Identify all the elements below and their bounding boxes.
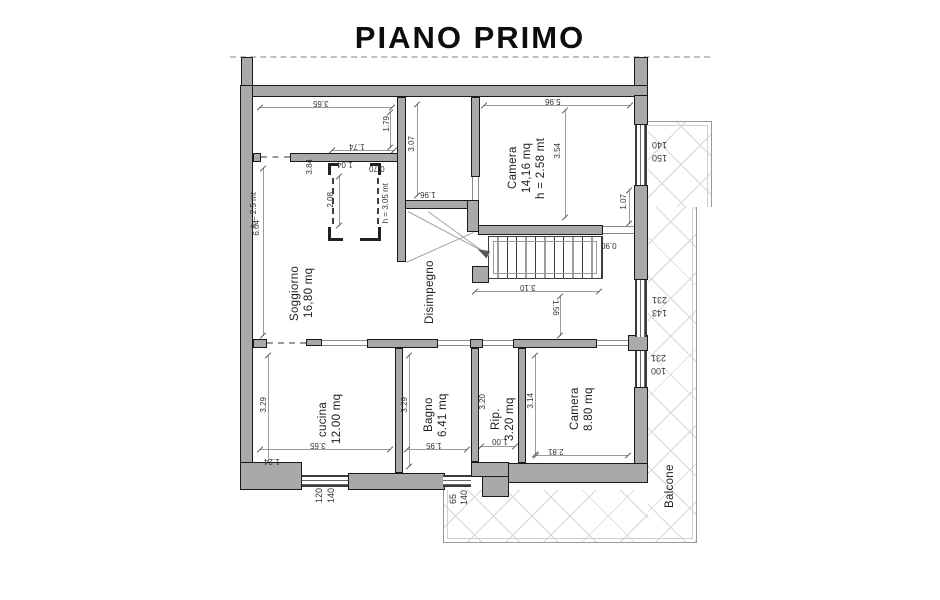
room-name: Soggiorno (288, 248, 302, 338)
staircase-newel-post (472, 266, 489, 283)
dim-label: 1.96 (420, 190, 436, 199)
dimension-line (268, 355, 269, 467)
page-title: PIANO PRIMO (0, 20, 940, 56)
dim-label: 3.14 (526, 393, 535, 409)
dim-label: 1.56 (551, 300, 560, 316)
room-name: Bagno (422, 383, 436, 447)
window-size-label: 231 (652, 295, 667, 305)
window-size-label: 100 (651, 366, 666, 376)
balcony-hatch-top-right (648, 121, 712, 207)
wall (470, 339, 483, 348)
door-opening (322, 340, 367, 346)
window-size-label: 231 (651, 353, 666, 363)
room-height: h = 2.58 mt (534, 128, 548, 208)
room-area: 16,80 mq (302, 248, 316, 338)
wall (241, 57, 253, 87)
staircase-rail (493, 241, 597, 274)
wall-pillar (628, 335, 648, 351)
height-label: h = 3.05 mt (381, 183, 390, 223)
door-opening (597, 340, 628, 346)
wall (634, 57, 648, 87)
door-opening (483, 340, 513, 346)
window-size-label: 140 (459, 490, 469, 505)
wall-protrusion (482, 476, 509, 497)
dimension-line (629, 190, 630, 224)
dimension-line (535, 355, 536, 455)
dim-label: 3.10 (520, 283, 536, 292)
wall (471, 97, 480, 177)
balcony-hatch-bottom (443, 490, 648, 543)
room-name: Rip. (489, 390, 503, 448)
projection-bracket (328, 227, 343, 241)
window (635, 351, 647, 387)
door-opening (603, 226, 634, 234)
room-name: cucina (316, 383, 330, 455)
dim-label: 2.81 (548, 447, 564, 456)
wall (240, 462, 302, 490)
dim-label: 3.54 (553, 143, 562, 159)
room-label-cucina: cucina 12.00 mq (316, 383, 344, 455)
room-label-rip: Rip. 3.20 mq (489, 390, 517, 448)
wall (240, 85, 648, 97)
wall (518, 348, 526, 463)
room-name: Camera (568, 376, 582, 442)
balcony-border-inner (447, 490, 648, 539)
window-size-label: 143 (652, 308, 667, 318)
wall (634, 185, 648, 280)
dim-label: 6.04 (252, 220, 261, 236)
dim-label: 3.07 (407, 136, 416, 152)
door-opening (267, 342, 306, 344)
dim-label: 1.07 (619, 194, 628, 210)
wall (397, 97, 406, 262)
dim-label: 1.79 (382, 116, 391, 132)
window (635, 280, 647, 337)
dim-label: 3.29 (259, 397, 268, 413)
dim-label: 0.90 (601, 241, 617, 250)
room-name: Balcone (663, 458, 677, 514)
window-size-label: 65 (448, 494, 458, 504)
wall (253, 153, 261, 162)
room-area: 3.20 mq (503, 390, 517, 448)
room-area: 6.41 mq (436, 383, 450, 447)
window (302, 475, 348, 487)
dimension-line (409, 355, 410, 467)
wall (478, 225, 603, 235)
window-size-label: 120 (314, 488, 324, 503)
projection-dashed-line (377, 178, 379, 224)
door-opening (438, 340, 470, 346)
wall (471, 462, 509, 477)
dim-label: 1.24 (264, 457, 280, 466)
wall (508, 463, 648, 483)
dimension-line (263, 168, 264, 336)
room-area: 8.80 mq (582, 376, 596, 442)
room-area: 14,16 mq (520, 128, 534, 208)
door-opening (472, 177, 479, 200)
dim-label: 3.84 (305, 159, 314, 175)
dimension-line (560, 296, 561, 336)
dimension-line (475, 291, 599, 292)
dim-label: 5.96 (545, 97, 561, 106)
stair-winder-line (406, 232, 474, 263)
balcony-border-inner (648, 125, 708, 207)
room-label-soggiorno: Soggiorno 16,80 mq (288, 248, 316, 338)
dim-label: 1.74 (349, 142, 365, 151)
dim-label: 1.04 (337, 160, 353, 169)
room-label-balcone: Balcone (663, 458, 677, 514)
room-name: Camera (506, 128, 520, 208)
dim-label: 3.20 (478, 394, 487, 410)
dimension-line (565, 110, 566, 218)
wall-stub (306, 339, 322, 346)
window-size-label: 140 (652, 140, 667, 150)
wall (634, 95, 648, 125)
room-area: 12.00 mq (330, 383, 344, 455)
dim-label: 3.65 (313, 99, 329, 108)
window-size-label: 140 (326, 488, 336, 503)
room-label-bagno: Bagno 6.41 mq (422, 383, 450, 447)
window (635, 125, 647, 185)
wall (405, 200, 471, 209)
window (443, 475, 471, 487)
wall (348, 473, 445, 490)
room-label-disimpegno: Disimpegno (423, 245, 437, 340)
wall (253, 339, 267, 348)
floor-plan: PIANO PRIMO Balcone (0, 0, 940, 600)
dim-label: 0.70 (369, 164, 385, 173)
wall (513, 339, 597, 348)
projection-bracket (360, 227, 381, 241)
wall (367, 339, 438, 348)
wall (634, 387, 648, 467)
dim-label: 3.29 (400, 397, 409, 413)
room-label-camera2: Camera 8.80 mq (568, 376, 596, 442)
door-opening (261, 156, 290, 158)
dimension-line (339, 176, 340, 226)
window-size-label: 150 (652, 153, 667, 163)
room-name: Disimpegno (423, 245, 437, 340)
wall (240, 85, 253, 490)
dim-label: 2.08 (326, 192, 335, 208)
room-label-camera1: Camera 14,16 mq h = 2.58 mt (506, 128, 548, 208)
dimension-line (417, 104, 418, 196)
